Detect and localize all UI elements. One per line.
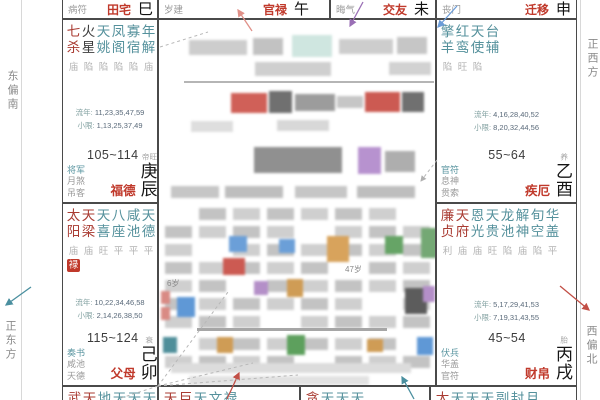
palace-box-caibo[interactable]: 廉贞利天府庙恩光庙天贵旺龙池陷解神庙旬空陷华盖平流年: 5,17,29,41,5… [436, 203, 577, 386]
star-column: 火星陷 [81, 24, 96, 71]
star-char: 龙 [501, 208, 515, 224]
redacted-block [217, 337, 233, 353]
xiaoxian-label: 小限: [474, 313, 491, 322]
star-status: 平 [129, 244, 139, 255]
star-column: 七杀庙 [66, 24, 81, 71]
star-char: 阳 [67, 224, 81, 240]
shensha-label: 将军 [67, 165, 85, 177]
redacted-block [301, 298, 328, 310]
redacted-block [369, 262, 396, 274]
stem-branch-column: 胎丙戌 [555, 327, 574, 382]
star-char-clipped: 天 [450, 391, 465, 400]
shensha-list: 奏书咸池天德 [67, 327, 85, 382]
redacted-block [255, 62, 331, 76]
star-status: 旺 [488, 244, 498, 255]
star-column: 解神庙 [515, 208, 530, 255]
redacted-block [397, 37, 427, 54]
redacted-block [335, 208, 362, 220]
redacted-block [223, 258, 245, 275]
redacted-block [335, 338, 362, 350]
star-column: 凤阁陷 [111, 24, 126, 71]
branch-char: 申 [556, 2, 571, 17]
palace-footer: 官符息神贯索55~64疾厄养乙酉 [437, 142, 576, 202]
redacted-block [269, 91, 292, 113]
liunian-numbers: 5,17,29,41,53 [491, 300, 539, 309]
star-char: 天 [97, 208, 111, 224]
redacted-block [295, 186, 347, 198]
star-char-clipped: 副 [495, 391, 510, 400]
redacted-block [191, 121, 233, 132]
branch-char: 未 [414, 2, 429, 17]
shensha-label: 吊客 [67, 188, 85, 200]
star-char-clipped: 天 [465, 391, 480, 400]
star-char: 寡 [127, 24, 141, 40]
star-char: 咸 [127, 208, 141, 224]
redacted-block [225, 186, 283, 198]
star-char: 恩 [471, 208, 485, 224]
xiaoxian-ages: 小限: 7,19,31,43,55 [437, 313, 576, 322]
redacted-block [421, 228, 436, 258]
liunian-ages: 流年: 11,23,35,47,59 [63, 108, 157, 117]
redacted-block [301, 262, 328, 274]
redacted-block [165, 226, 192, 238]
palace-footer: 伏兵华盖官符45~54财帛胎丙戌 [437, 325, 576, 385]
star-char: 喜 [97, 224, 111, 240]
lifecycle-stage: 养 [561, 152, 569, 163]
star-char: 旬 [531, 208, 545, 224]
star-char-clipped: 月 [525, 391, 540, 400]
shensha-label: 咸池 [67, 359, 85, 371]
star-status: 陷 [84, 60, 94, 71]
palace-name: 田宅 [107, 4, 131, 17]
star-status: 平 [548, 244, 558, 255]
star-column: 年解庙 [141, 24, 156, 71]
redacted-block [339, 39, 393, 54]
star-column: 廉贞利 [440, 208, 455, 255]
star-column: 龙池陷 [500, 208, 515, 255]
star-char: 星 [82, 40, 96, 56]
redacted-block [233, 208, 260, 220]
lifecycle-stage: 帝旺 [141, 152, 156, 163]
star-char: 天 [142, 208, 156, 224]
shensha-label: 丧门 [442, 5, 461, 17]
redacted-block [199, 316, 226, 328]
star-char: 贞 [441, 224, 455, 240]
direction-label-due-east: 正东方 [2, 320, 18, 362]
branch-char: 辰 [141, 181, 158, 199]
star-char-clipped: 地 [97, 391, 112, 400]
footer-middle: 105~114福德 [85, 144, 141, 199]
footer-middle: 45~54财帛 [459, 327, 555, 382]
star-char: 年 [142, 24, 156, 40]
star-char: 池 [127, 224, 141, 240]
redacted-block [254, 281, 268, 295]
redacted-block [199, 262, 226, 274]
redacted-block [358, 147, 381, 174]
xiaoxian-numbers: 2,14,26,38,50 [95, 311, 143, 320]
redacted-block [279, 239, 295, 253]
palace-name: 财帛 [525, 363, 550, 382]
redacted-block [385, 151, 415, 172]
palace-header-jiaoyou[interactable]: 晦气交友未 [330, 0, 436, 19]
redacted-block [365, 92, 400, 112]
star-status: 陷 [473, 60, 483, 71]
redacted-block [327, 236, 349, 262]
branch-char: 戌 [556, 364, 573, 382]
star-char-clipped: 禄 [223, 391, 238, 400]
redacted-block [417, 337, 433, 355]
star-char-clipped: 天 [480, 391, 495, 400]
star-column: 天德平 [141, 208, 156, 272]
star-char-clipped: 天 [335, 391, 350, 400]
palace-footer: 奏书咸池天德115~124父母衰己卯 [63, 325, 157, 385]
star-char: 座 [112, 224, 126, 240]
redacted-block [301, 338, 328, 350]
branch-char: 卯 [141, 364, 158, 382]
redacted-block [161, 291, 170, 304]
star-char: 廉 [441, 208, 455, 224]
redacted-block [233, 338, 260, 350]
branch-char: 午 [294, 2, 309, 17]
redacted-block [177, 297, 195, 317]
star-char: 八 [112, 208, 126, 224]
shensha-list: 伏兵华盖官符 [441, 327, 459, 382]
star-status: 庙 [69, 60, 79, 71]
palace-footer: 将军月煞吊客105~114福德帝旺庚辰 [63, 142, 157, 202]
star-char: 阁 [112, 40, 126, 56]
palace-partial-zi[interactable]: 贪天天天 [300, 386, 430, 400]
star-status: 平 [144, 244, 154, 255]
star-char: 盖 [546, 224, 560, 240]
star-list: 太阳庙禄天梁庙天喜旺八座平咸池平天德平 [66, 208, 156, 272]
age-note-47: 47岁 [345, 264, 362, 275]
redacted-block [229, 236, 247, 252]
shensha-label: 官符 [441, 371, 459, 383]
liunian-numbers: 11,23,35,47,59 [93, 108, 145, 117]
palace-name: 交友 [383, 4, 407, 17]
star-column: 天府庙 [455, 208, 470, 255]
xiaoxian-ages: 小限: 1,13,25,37,49 [63, 121, 157, 130]
redacted-block [267, 208, 294, 220]
redacted-block [357, 186, 415, 198]
lifecycle-stage: 胎 [561, 335, 569, 346]
palace-name: 迁移 [525, 4, 549, 17]
star-status: 庙 [458, 244, 468, 255]
redacted-block [301, 208, 328, 220]
star-char: 辅 [486, 40, 500, 56]
shensha-label: 华盖 [441, 359, 459, 371]
star-status: 庙 [84, 244, 94, 255]
shensha-label: 息神 [441, 176, 459, 188]
redacted-block [199, 280, 226, 292]
redacted-block [389, 62, 431, 75]
redacted-block [292, 35, 332, 57]
stem-branch-column: 帝旺庚辰 [141, 144, 158, 199]
xiaoxian-numbers: 7,19,31,43,55 [491, 313, 539, 322]
star-char: 火 [82, 24, 96, 40]
redacted-block [189, 40, 247, 55]
footer-middle: 55~64疾厄 [459, 144, 555, 199]
star-char-clipped: 天 [127, 391, 142, 400]
star-status: 庙 [473, 244, 483, 255]
shensha-label: 晦气 [336, 5, 355, 17]
shensha-label: 奏书 [67, 348, 85, 360]
star-char: 华 [546, 208, 560, 224]
branch-char: 酉 [556, 181, 573, 199]
star-column: 太阳庙禄 [66, 208, 81, 272]
stem-char: 乙 [556, 163, 573, 181]
stem-char: 丙 [556, 346, 573, 364]
star-char-clipped: 天 [193, 391, 208, 400]
star-char: 神 [516, 224, 530, 240]
star-char: 七 [67, 24, 81, 40]
decade-age-range: 105~114 [87, 148, 139, 162]
decade-age-range: 45~54 [461, 331, 553, 345]
redacted-block [161, 307, 170, 320]
redacted-block [165, 262, 192, 274]
liunian-ages: 流年: 4,16,28,40,52 [437, 110, 576, 119]
star-status: 平 [114, 244, 124, 255]
liunian-label: 流年: [474, 110, 491, 119]
star-char-clipped: 太 [435, 391, 450, 400]
star-char-clipped: 天 [350, 391, 365, 400]
palace-partial-yin[interactable]: 武天地天天天蜚 [62, 386, 158, 400]
star-char: 擎 [441, 24, 455, 40]
redacted-block [403, 316, 430, 328]
star-status: 陷 [99, 60, 109, 71]
redacted-block [199, 208, 226, 220]
star-char-clipped: 天 [112, 391, 127, 400]
star-char: 贵 [486, 224, 500, 240]
xiaoxian-numbers: 8,20,32,44,56 [491, 123, 539, 132]
hua-lu-badge: 禄 [67, 259, 80, 272]
star-column: 红鸾旺 [455, 24, 470, 71]
redacted-block [335, 298, 362, 310]
palace-name: 官禄 [263, 4, 287, 17]
star-char: 天 [456, 208, 470, 224]
redacted-block [367, 339, 383, 352]
liunian-ages: 流年: 10,22,34,46,58 [63, 298, 157, 307]
footer-middle: 115~124父母 [85, 327, 141, 382]
redacted-block [295, 94, 335, 111]
star-char: 鸾 [456, 40, 470, 56]
shensha-label: 天德 [67, 371, 85, 383]
star-char: 红 [456, 24, 470, 40]
star-status: 旺 [458, 60, 468, 71]
liunian-ages: 流年: 5,17,29,41,53 [437, 300, 576, 309]
palace-header-qianyi[interactable]: 丧门迁移申 [436, 0, 577, 19]
direction-label-due-west: 正西方 [584, 38, 600, 80]
star-column: 台辅 [485, 24, 500, 71]
palace-name: 福德 [111, 180, 136, 199]
redacted-block [369, 208, 396, 220]
redacted-block [171, 363, 411, 373]
star-char: 使 [471, 40, 485, 56]
redacted-block [277, 120, 329, 131]
star-char: 解 [516, 208, 530, 224]
lifecycle-stage: 衰 [145, 335, 153, 346]
star-status: 庙 [518, 244, 528, 255]
shensha-list: 将军月煞吊客 [67, 144, 85, 199]
star-status: 陷 [503, 244, 513, 255]
redacted-block [403, 262, 430, 274]
direction-label-west-north: 西偏北 [583, 325, 599, 367]
xiaoxian-numbers: 1,13,25,37,49 [95, 121, 143, 130]
redacted-block [267, 262, 294, 274]
direction-label-east-south: 东偏南 [4, 70, 20, 112]
star-char: 光 [471, 224, 485, 240]
star-char-clipped: 武 [67, 391, 82, 400]
star-column: 八座平 [111, 208, 126, 272]
center-info-panel-redacted: 6岁 47岁 [158, 19, 436, 386]
redacted-block [301, 316, 328, 328]
star-char: 池 [501, 224, 515, 240]
star-char: 解 [142, 40, 156, 56]
palace-box-fude[interactable]: 七杀庙火星陷天姚陷凤阁陷寡宿陷年解庙流年: 11,23,35,47,59小限: … [62, 19, 158, 203]
outer-frame-left-line [21, 0, 22, 400]
palace-header-tianzhai[interactable]: 病符田宅巳 [62, 0, 158, 19]
star-column: 擎羊陷 [440, 24, 455, 71]
palace-name: 疾厄 [525, 180, 550, 199]
outer-frame-right-line [580, 0, 581, 400]
star-column: 天梁庙 [81, 208, 96, 272]
star-char-clipped: 天 [163, 391, 178, 400]
redacted-block [335, 280, 362, 292]
age-note-6: 6岁 [167, 278, 179, 289]
redacted-block [171, 186, 219, 198]
palace-box-jie[interactable]: 擎羊陷红鸾旺天使陷台辅流年: 4,16,28,40,52小限: 8,20,32,… [436, 19, 577, 203]
redacted-block [385, 236, 403, 254]
star-char-clipped: 天 [320, 391, 335, 400]
star-char: 凤 [112, 24, 126, 40]
redacted-block [267, 226, 294, 238]
star-column: 天喜旺 [96, 208, 111, 272]
decade-age-range: 115~124 [87, 331, 139, 345]
star-column: 天使陷 [470, 24, 485, 71]
redacted-block [199, 226, 226, 238]
redacted-block [369, 316, 396, 328]
redacted-block [301, 244, 328, 256]
star-char: 空 [531, 224, 545, 240]
star-column: 寡宿陷 [126, 24, 141, 71]
liunian-numbers: 10,22,34,46,58 [92, 298, 144, 307]
liunian-label: 流年: [76, 108, 93, 117]
redacted-block [253, 38, 283, 55]
redacted-block [423, 286, 435, 302]
star-list: 廉贞利天府庙恩光庙天贵旺龙池陷解神庙旬空陷华盖平 [440, 208, 560, 255]
star-char-clipped: 封 [510, 391, 525, 400]
star-list: 擎羊陷红鸾旺天使陷台辅 [440, 24, 500, 71]
star-list: 七杀庙火星陷天姚陷凤阁陷寡宿陷年解庙 [66, 24, 156, 71]
star-char: 天 [97, 24, 111, 40]
redacted-block [165, 244, 192, 256]
star-status: 旺 [99, 244, 109, 255]
center-divider-line [184, 81, 434, 83]
redacted-block [335, 316, 362, 328]
star-char-clipped: 贪 [305, 391, 320, 400]
center-divider-line-2 [197, 328, 387, 331]
redacted-block [189, 376, 369, 385]
star-char: 天 [486, 208, 500, 224]
star-char-clipped: 天 [82, 391, 97, 400]
xiaoxian-ages: 小限: 2,14,26,38,50 [63, 311, 157, 320]
redacted-block [287, 279, 303, 297]
star-column: 旬空陷 [530, 208, 545, 255]
palace-partial-hai[interactable]: 太天天天副封月 [430, 386, 577, 400]
redacted-block [337, 96, 363, 108]
palace-header-guanlu[interactable]: 岁建官禄午 [158, 0, 330, 19]
shensha-list: 官符息神贯索 [441, 144, 459, 199]
redacted-block [369, 280, 396, 292]
star-char-clipped: 文 [208, 391, 223, 400]
star-status: 利 [443, 244, 453, 255]
ziwei-chart: 东偏南 正东方 正西方 西偏北 病符田宅巳岁建官禄午晦气交友未丧门迁移申七杀庙火… [0, 0, 600, 400]
shensha-label: 官符 [441, 165, 459, 177]
star-char: 杀 [67, 40, 81, 56]
shensha-label: 岁建 [164, 5, 183, 17]
star-char-clipped: 天 [142, 391, 157, 400]
stem-branch-column: 养乙酉 [555, 144, 574, 199]
star-status: 陷 [533, 244, 543, 255]
stem-char: 庚 [141, 163, 158, 181]
palace-box-fumu[interactable]: 太阳庙禄天梁庙天喜旺八座平咸池平天德平流年: 10,22,34,46,58小限:… [62, 203, 158, 386]
star-status: 庙 [69, 244, 79, 255]
xiaoxian-label: 小限: [474, 123, 491, 132]
shensha-label: 贯索 [441, 188, 459, 200]
stem-branch-column: 衰己卯 [141, 327, 158, 382]
star-status: 陷 [129, 60, 139, 71]
redacted-block [254, 147, 342, 173]
star-char: 德 [142, 224, 156, 240]
star-column: 恩光庙 [470, 208, 485, 255]
liunian-label: 流年: [474, 300, 491, 309]
palace-partial-chou[interactable]: 天巨天文禄 [158, 386, 300, 400]
star-column: 华盖平 [545, 208, 560, 255]
star-char: 天 [82, 208, 96, 224]
star-char: 府 [456, 224, 470, 240]
redacted-block [233, 298, 260, 310]
xiaoxian-ages: 小限: 8,20,32,44,56 [437, 123, 576, 132]
star-char: 宿 [127, 40, 141, 56]
redacted-block [402, 92, 424, 112]
redacted-block [267, 298, 294, 310]
star-char: 天 [471, 24, 485, 40]
liunian-numbers: 4,16,28,40,52 [491, 110, 539, 119]
star-column: 天姚陷 [96, 24, 111, 71]
shensha-label: 伏兵 [441, 348, 459, 360]
star-char-clipped: 巨 [178, 391, 193, 400]
star-char: 台 [486, 24, 500, 40]
stem-char: 己 [141, 346, 158, 364]
star-char: 羊 [441, 40, 455, 56]
star-status: 陷 [443, 60, 453, 71]
arrow-teal-left [6, 287, 31, 305]
star-char: 太 [67, 208, 81, 224]
redacted-block [233, 316, 260, 328]
redacted-block [199, 298, 226, 310]
redacted-block [163, 337, 177, 353]
star-column: 咸池平 [126, 208, 141, 272]
shensha-label: 病符 [68, 5, 87, 17]
decade-age-range: 55~64 [461, 148, 553, 162]
redacted-block [287, 335, 305, 355]
star-char: 梁 [82, 224, 96, 240]
star-column: 天贵旺 [485, 208, 500, 255]
redacted-block [231, 93, 267, 113]
star-char: 姚 [97, 40, 111, 56]
liunian-label: 流年: [75, 298, 92, 307]
branch-char: 巳 [138, 2, 153, 17]
